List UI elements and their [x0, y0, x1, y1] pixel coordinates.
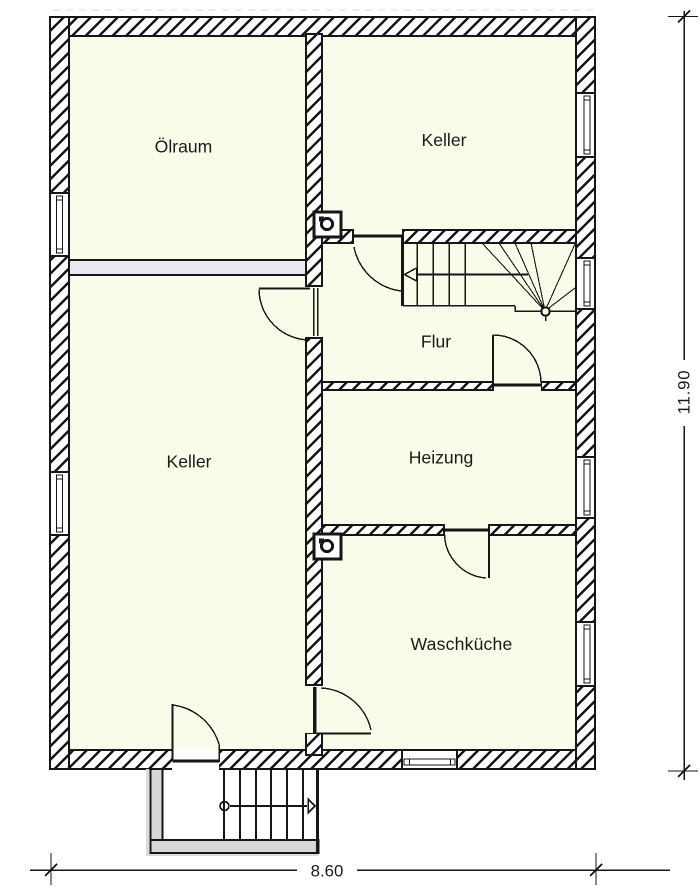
svg-text:Ölraum: Ölraum: [155, 137, 213, 157]
svg-text:8.60: 8.60: [311, 862, 344, 881]
svg-text:Keller: Keller: [167, 452, 212, 472]
svg-text:11.90: 11.90: [675, 370, 694, 415]
svg-text:Waschküche: Waschküche: [410, 634, 512, 654]
svg-text:Flur: Flur: [421, 332, 451, 352]
svg-text:Heizung: Heizung: [409, 448, 474, 468]
svg-text:Keller: Keller: [422, 130, 467, 150]
